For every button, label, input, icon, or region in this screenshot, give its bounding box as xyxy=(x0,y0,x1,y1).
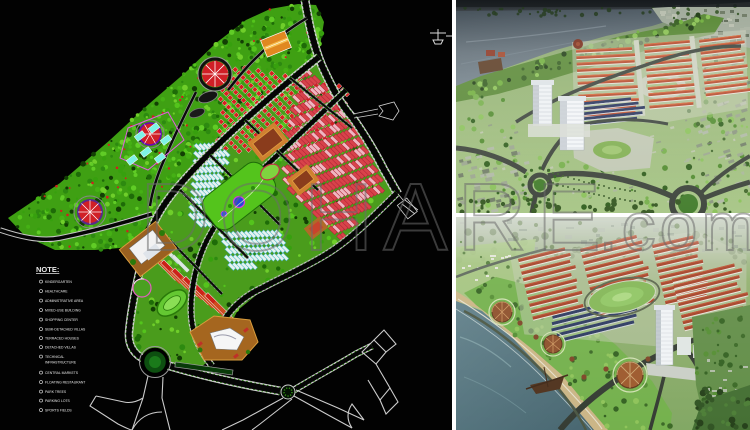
svg-text:FLOATING RESTAURANT: FLOATING RESTAURANT xyxy=(45,381,85,385)
svg-text:TECHNICAL: TECHNICAL xyxy=(45,355,64,359)
svg-text:NOTE:: NOTE: xyxy=(36,265,59,274)
svg-text:PARK TREES: PARK TREES xyxy=(45,390,67,394)
svg-text:KINDERGARTEN: KINDERGARTEN xyxy=(45,280,72,284)
svg-text:SPORTS FIELDS: SPORTS FIELDS xyxy=(45,409,72,413)
svg-text:CENTRAL MARKETS: CENTRAL MARKETS xyxy=(45,371,79,375)
svg-text:DETACHED VILLAS: DETACHED VILLAS xyxy=(45,346,77,350)
svg-text:INFRASTRUCTURE: INFRASTRUCTURE xyxy=(45,361,77,365)
svg-text:SHOPPING CENTER: SHOPPING CENTER xyxy=(45,318,78,322)
svg-text:SEMI-DETACHED VILLAS: SEMI-DETACHED VILLAS xyxy=(45,328,86,332)
svg-text:ADMINISTRATIVE AREA: ADMINISTRATIVE AREA xyxy=(45,299,84,303)
svg-text:TERRACED HOUSES: TERRACED HOUSES xyxy=(45,337,80,341)
svg-text:HEALTHCARE: HEALTHCARE xyxy=(45,290,68,294)
svg-text:PARKING LOTS: PARKING LOTS xyxy=(45,399,71,403)
svg-text:MIXED-USE BUILDING: MIXED-USE BUILDING xyxy=(45,309,81,313)
